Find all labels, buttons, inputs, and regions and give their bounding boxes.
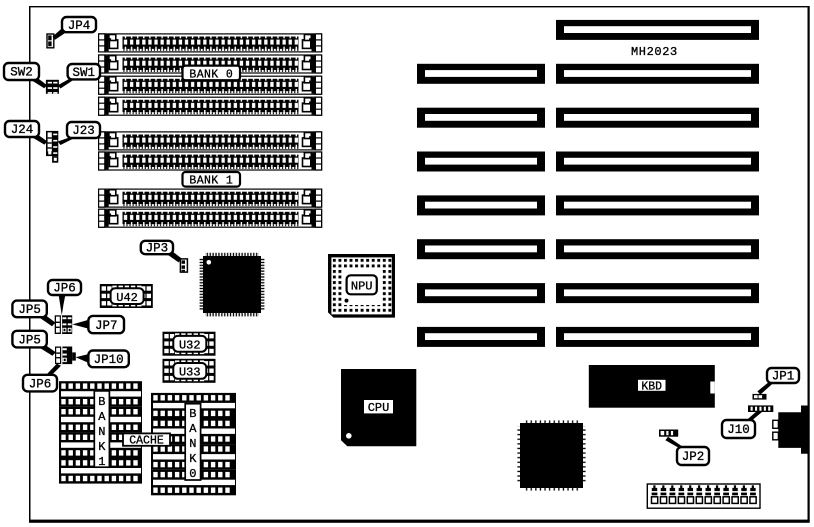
- svg-text:JP6: JP6: [53, 282, 76, 296]
- svg-text:U33: U33: [179, 366, 201, 380]
- svg-text:CACHE: CACHE: [129, 434, 164, 447]
- svg-text:JP3: JP3: [146, 242, 169, 256]
- svg-text:CPU: CPU: [368, 401, 390, 415]
- svg-text:MH2023: MH2023: [631, 45, 678, 59]
- svg-text:SW1: SW1: [73, 66, 96, 80]
- svg-text:JP1: JP1: [772, 370, 795, 384]
- svg-text:U32: U32: [179, 339, 201, 353]
- svg-text:A: A: [189, 422, 197, 436]
- svg-text:J24: J24: [11, 123, 34, 137]
- svg-text:KBD: KBD: [641, 380, 662, 393]
- svg-text:JP6: JP6: [29, 377, 52, 391]
- svg-text:JP10: JP10: [94, 353, 124, 367]
- svg-text:J10: J10: [727, 423, 750, 437]
- svg-text:K: K: [189, 452, 197, 466]
- svg-text:JP2: JP2: [682, 450, 705, 464]
- svg-text:BANK 1: BANK 1: [189, 175, 233, 188]
- svg-text:B: B: [98, 395, 105, 409]
- svg-text:N: N: [189, 437, 196, 451]
- svg-text:J23: J23: [72, 124, 95, 138]
- svg-text:SW2: SW2: [10, 66, 33, 80]
- svg-text:JP5: JP5: [18, 333, 41, 347]
- svg-text:JP7: JP7: [95, 319, 118, 333]
- svg-text:JP4: JP4: [68, 19, 91, 33]
- svg-text:0: 0: [189, 467, 196, 481]
- svg-text:1: 1: [98, 455, 105, 469]
- svg-text:NPU: NPU: [351, 279, 373, 293]
- svg-text:A: A: [98, 410, 106, 424]
- svg-text:U42: U42: [116, 291, 138, 305]
- svg-text:JP5: JP5: [18, 303, 41, 317]
- svg-text:B: B: [189, 407, 196, 421]
- svg-text:N: N: [98, 425, 105, 439]
- svg-text:K: K: [98, 440, 106, 454]
- svg-text:BANK 0: BANK 0: [189, 68, 233, 81]
